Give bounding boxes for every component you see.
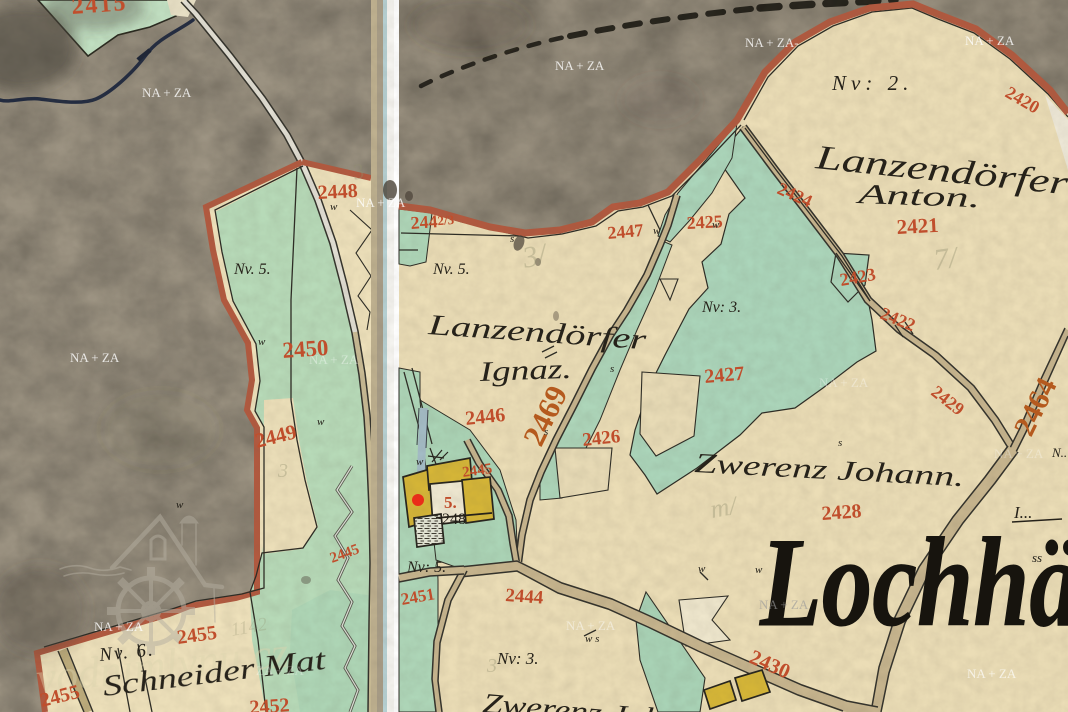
- svg-text:Lochhä: Lochhä: [759, 513, 1068, 653]
- svg-text:w: w: [317, 416, 325, 428]
- svg-text:Anton.: Anton.: [854, 179, 980, 214]
- svg-text:w: w: [416, 456, 424, 468]
- svg-text:w: w: [176, 499, 184, 511]
- svg-text:Nv. 5.: Nv. 5.: [432, 261, 470, 278]
- svg-text:NA + ZA: NA + ZA: [566, 618, 616, 633]
- svg-text:3: 3: [486, 655, 497, 677]
- svg-text:s: s: [838, 437, 842, 449]
- svg-text:s: s: [610, 363, 614, 375]
- svg-text:w: w: [653, 225, 661, 237]
- svg-text:Nv: 3.: Nv: 3.: [701, 299, 741, 316]
- svg-text:248: 248: [442, 511, 466, 528]
- svg-text:Nv: 5.: Nv: 5.: [406, 559, 446, 576]
- svg-text:NA + ZA: NA + ZA: [94, 619, 144, 634]
- svg-text:2421: 2421: [896, 213, 939, 239]
- svg-text:2452: 2452: [249, 694, 290, 712]
- svg-text:ZA + ZA: ZA + ZA: [256, 663, 304, 678]
- svg-text:2427: 2427: [704, 363, 746, 388]
- svg-text:w: w: [698, 563, 706, 575]
- svg-text:Ignaz.: Ignaz.: [478, 354, 572, 388]
- svg-text:2448: 2448: [317, 180, 358, 204]
- svg-text:3: 3: [277, 460, 288, 482]
- svg-text:w: w: [258, 336, 266, 348]
- svg-text:N..: N..: [1051, 445, 1067, 460]
- svg-text:NA + ZA: NA + ZA: [759, 597, 809, 612]
- svg-text:NA + ZA: NA + ZA: [994, 446, 1044, 461]
- svg-text:w: w: [712, 219, 720, 231]
- svg-text:w: w: [330, 201, 338, 213]
- svg-text:5.: 5.: [444, 493, 457, 512]
- svg-text:Nv: 3.: Nv: 3.: [496, 649, 539, 668]
- svg-text:NA + ZA: NA + ZA: [356, 195, 406, 210]
- svg-text:2446: 2446: [464, 404, 506, 430]
- svg-text:2444: 2444: [505, 585, 545, 609]
- svg-text:2447: 2447: [607, 220, 645, 243]
- svg-text:NA + ZA: NA + ZA: [70, 350, 120, 365]
- svg-text:s: s: [544, 426, 548, 438]
- svg-text:w: w: [755, 564, 763, 576]
- svg-text:NA + ZA-: NA + ZA-: [745, 35, 799, 50]
- svg-text:NA + ZA: NA + ZA: [819, 375, 869, 390]
- svg-text:NA + ZA: NA + ZA: [309, 352, 359, 367]
- svg-text:NA + ZA: NA + ZA: [142, 85, 192, 100]
- svg-text:Nv: 2.: Nv: 2.: [831, 71, 913, 95]
- svg-text:NA + ZA: NA + ZA: [965, 33, 1015, 48]
- svg-text:Nv. 5.: Nv. 5.: [233, 261, 271, 278]
- svg-text:s: s: [510, 233, 514, 245]
- svg-text:2426: 2426: [581, 426, 621, 451]
- svg-text:ss: ss: [1032, 550, 1042, 565]
- svg-text:NA + ZA: NA + ZA: [967, 666, 1017, 681]
- svg-text:w s: w s: [585, 633, 599, 645]
- svg-text:NA + ZA: NA + ZA: [555, 58, 605, 73]
